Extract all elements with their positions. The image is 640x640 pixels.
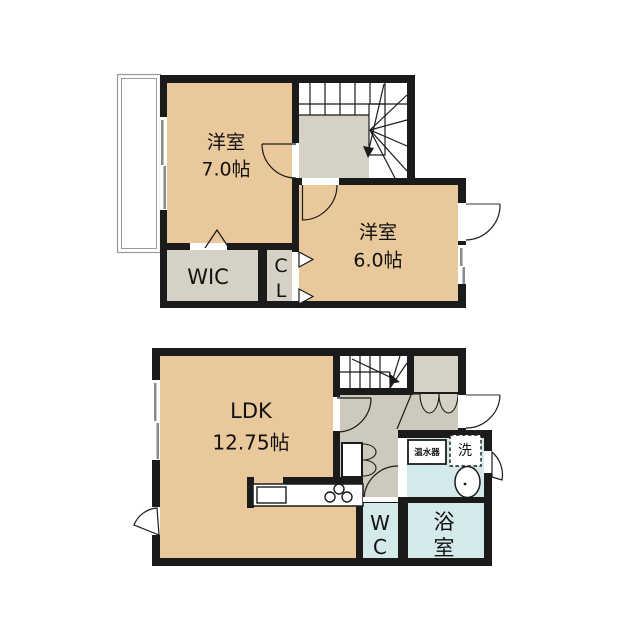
toilet-label: WC: [366, 511, 394, 560]
bedroom-7-size: 7.0帖: [201, 155, 250, 182]
bedroom-6-size: 6.0帖: [353, 246, 402, 273]
floorplan-graphics: [0, 0, 640, 640]
window-bedroom7-left: [160, 117, 167, 210]
wic-label: WIC: [187, 265, 229, 289]
hall-closet-area: [414, 356, 458, 392]
kitchen-sink: [257, 487, 286, 503]
ldk-size: 12.75帖: [212, 427, 289, 456]
window-ldk-left: [152, 380, 160, 460]
balcony: [118, 75, 161, 253]
ldk-label: LDK: [230, 399, 272, 423]
bedroom-7-label: 洋室: [207, 128, 245, 155]
washbasin: [455, 467, 480, 498]
cl-label: CL: [270, 254, 292, 303]
bathroom-label: 浴室: [429, 509, 459, 561]
door-wedge-ldk-left: [134, 508, 159, 535]
bedroom-6-label: 洋室: [359, 218, 397, 245]
door-arc-bedroom6-entry: [466, 204, 500, 240]
stair-landing-2f: [299, 115, 369, 180]
floorplan: 洋室 7.0帖 洋室 6.0帖 WIC CL LDK 12.75帖 WC 浴室 …: [0, 0, 640, 640]
ldk-area: [160, 356, 356, 558]
door-arc-entry: [466, 395, 500, 428]
door-wedge-washroom: [492, 452, 502, 480]
floor-2f: [118, 75, 501, 309]
window-bedroom6-right: [458, 245, 466, 284]
washing-machine-label: 洗: [458, 440, 472, 460]
water-heater-label: 温水器: [414, 446, 440, 458]
